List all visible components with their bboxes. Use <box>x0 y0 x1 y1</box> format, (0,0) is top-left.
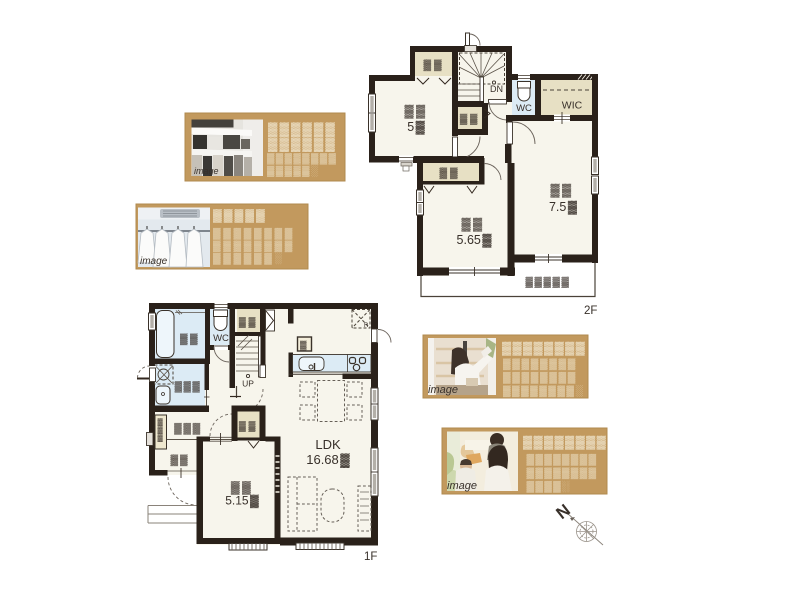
svg-text:▓▓: ▓▓ <box>170 454 189 466</box>
svg-text:▓▓▓▓▓▓▓▓: ▓▓▓▓▓▓▓▓ <box>213 240 295 252</box>
svg-text:▓▓▓: ▓▓▓ <box>174 423 202 435</box>
svg-text:▓▓▓▓▓▓▓▓: ▓▓▓▓▓▓▓▓ <box>213 228 295 240</box>
svg-text:image: image <box>140 256 168 267</box>
svg-text:5.15▓: 5.15▓ <box>225 494 259 509</box>
svg-text:▓▓: ▓▓ <box>239 317 258 328</box>
svg-text:image: image <box>428 384 458 396</box>
svg-text:▓: ▓ <box>157 426 164 434</box>
svg-text:▓▓: ▓▓ <box>461 217 484 232</box>
svg-text:▓▓▓▓▓▓: ▓▓▓▓▓▓ <box>268 121 337 137</box>
svg-text:UP: UP <box>242 379 254 389</box>
svg-text:▓▓: ▓▓ <box>423 59 444 71</box>
svg-text:image: image <box>447 480 477 492</box>
svg-text:5▓: 5▓ <box>407 120 425 135</box>
svg-text:R: R <box>364 323 369 329</box>
svg-text:LDK: LDK <box>315 437 341 452</box>
svg-text:image: image <box>194 166 219 176</box>
svg-text:▓: ▓ <box>157 418 164 426</box>
svg-text:16.68▓: 16.68▓ <box>306 452 350 468</box>
svg-text:▓▓▓: ▓▓▓ <box>175 381 202 393</box>
svg-text:▓▓▓▓▓▓▓▓: ▓▓▓▓▓▓▓▓ <box>502 341 586 356</box>
svg-text:1F: 1F <box>364 551 377 563</box>
svg-text:▓▓▓▓▓▓▓▓: ▓▓▓▓▓▓▓▓ <box>503 372 577 384</box>
svg-text:▓: ▓ <box>157 434 164 442</box>
svg-text:▓▓: ▓▓ <box>404 104 427 119</box>
svg-text:7.5▓: 7.5▓ <box>549 200 578 215</box>
svg-text:▓▓▓▓▓▓▓▓: ▓▓▓▓▓▓▓▓ <box>503 358 577 370</box>
svg-text:▓▓▓▓▓▓▓▓: ▓▓▓▓▓▓▓▓ <box>527 454 598 466</box>
svg-text:▓▓▓▓▓: ▓▓▓▓▓ <box>526 276 571 288</box>
svg-text:▓▓▓▓▓░: ▓▓▓▓▓░ <box>267 165 320 177</box>
svg-text:▓▓: ▓▓ <box>239 421 258 432</box>
svg-text:▓▓▓▓▓▓▓▓: ▓▓▓▓▓▓▓▓ <box>523 435 607 450</box>
svg-text:5.65▓: 5.65▓ <box>457 233 493 248</box>
svg-text:WC: WC <box>516 103 532 114</box>
svg-text:▓: ▓ <box>300 340 309 351</box>
svg-text:▓▓▓▓▓▓▓▓: ▓▓▓▓▓▓▓▓ <box>527 467 598 479</box>
svg-text:▓▓▓▓▓▓: ▓▓▓▓▓▓ <box>268 136 337 152</box>
svg-text:▓▓: ▓▓ <box>550 183 573 198</box>
svg-text:▓▓▓▓▓▓▓▓░: ▓▓▓▓▓▓▓▓░ <box>503 385 584 397</box>
svg-text:2F: 2F <box>584 305 597 317</box>
svg-text:▓▓: ▓▓ <box>439 167 460 179</box>
svg-text:DN: DN <box>490 84 503 94</box>
svg-text:▓▓▓▓▓▓░: ▓▓▓▓▓▓░ <box>213 253 285 265</box>
svg-text:▓▓: ▓▓ <box>180 333 200 345</box>
svg-text:WC: WC <box>213 333 229 344</box>
svg-text:▓▓▓▓▓▓▓▓: ▓▓▓▓▓▓▓▓ <box>267 153 337 165</box>
svg-text:▓▓▓▓▓: ▓▓▓▓▓ <box>213 208 267 223</box>
svg-text:WIC: WIC <box>562 100 583 112</box>
svg-text:▓▓▓▓░: ▓▓▓▓░ <box>527 481 571 493</box>
svg-text:▓▓: ▓▓ <box>460 113 480 125</box>
